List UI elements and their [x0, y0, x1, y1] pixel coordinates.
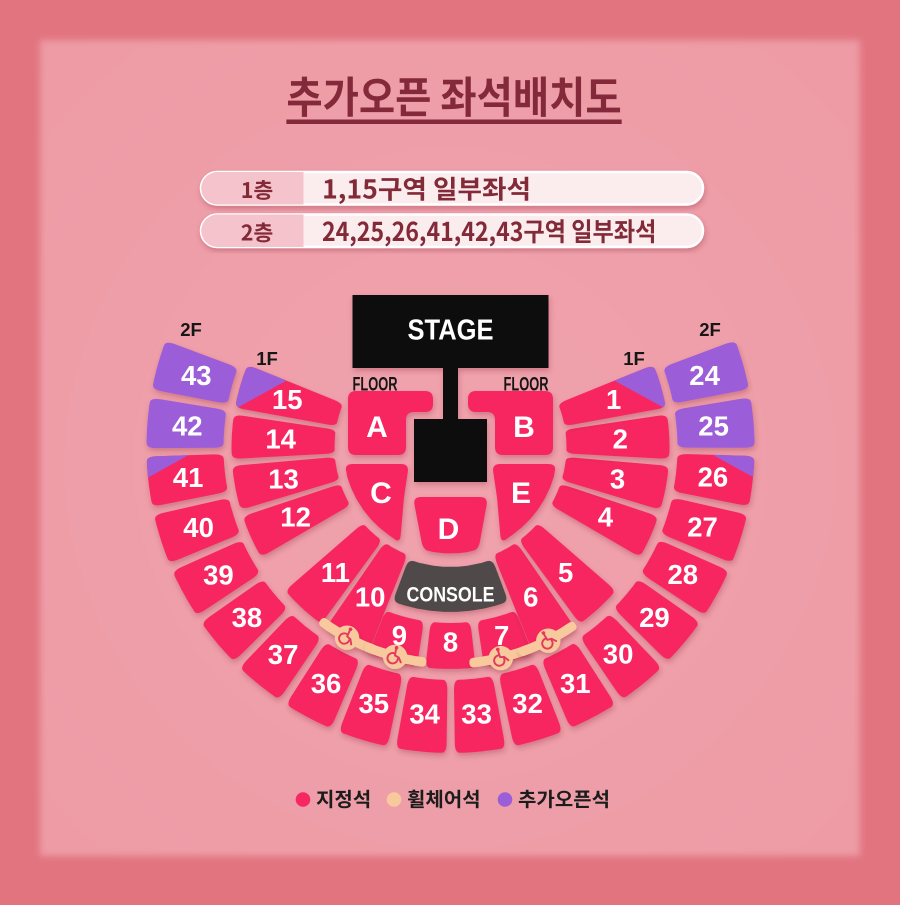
- svg-text:C: C: [370, 477, 392, 510]
- svg-text:STAGE: STAGE: [408, 315, 494, 347]
- svg-text:33: 33: [461, 698, 492, 729]
- svg-text:24: 24: [689, 360, 720, 391]
- svg-text:40: 40: [183, 512, 214, 543]
- svg-text:38: 38: [232, 602, 263, 633]
- svg-text:41: 41: [173, 462, 204, 493]
- svg-text:31: 31: [560, 668, 591, 699]
- svg-text:4: 4: [598, 502, 614, 533]
- svg-text:D: D: [438, 513, 460, 546]
- svg-text:27: 27: [687, 512, 718, 543]
- svg-text:11: 11: [321, 557, 350, 588]
- svg-text:28: 28: [668, 559, 699, 590]
- svg-text:29: 29: [639, 602, 670, 633]
- svg-text:2F: 2F: [699, 319, 721, 340]
- svg-text:CONSOLE: CONSOLE: [407, 584, 495, 607]
- svg-text:30: 30: [603, 639, 634, 670]
- svg-text:14: 14: [265, 424, 296, 455]
- svg-text:25: 25: [698, 410, 729, 441]
- svg-text:34: 34: [409, 698, 440, 729]
- svg-text:1F: 1F: [623, 348, 645, 369]
- svg-text:1F: 1F: [256, 348, 278, 369]
- svg-text:A: A: [366, 411, 388, 444]
- svg-text:26: 26: [698, 462, 729, 493]
- svg-text:6: 6: [523, 581, 538, 612]
- svg-text:3: 3: [610, 464, 625, 495]
- svg-text:32: 32: [512, 688, 543, 719]
- svg-text:E: E: [511, 477, 531, 510]
- svg-text:2F: 2F: [180, 319, 202, 340]
- svg-text:1: 1: [606, 384, 621, 415]
- svg-text:5: 5: [558, 557, 573, 588]
- svg-text:43: 43: [181, 360, 212, 391]
- svg-text:36: 36: [311, 668, 342, 699]
- svg-text:39: 39: [203, 559, 234, 590]
- svg-text:2: 2: [613, 424, 628, 455]
- svg-text:37: 37: [268, 639, 299, 670]
- svg-text:10: 10: [355, 581, 386, 612]
- svg-text:42: 42: [172, 411, 203, 442]
- svg-text:B: B: [513, 411, 535, 444]
- svg-text:15: 15: [272, 384, 303, 415]
- svg-text:8: 8: [443, 627, 458, 658]
- svg-text:12: 12: [280, 502, 311, 533]
- svg-text:35: 35: [359, 688, 390, 719]
- svg-text:13: 13: [268, 464, 299, 495]
